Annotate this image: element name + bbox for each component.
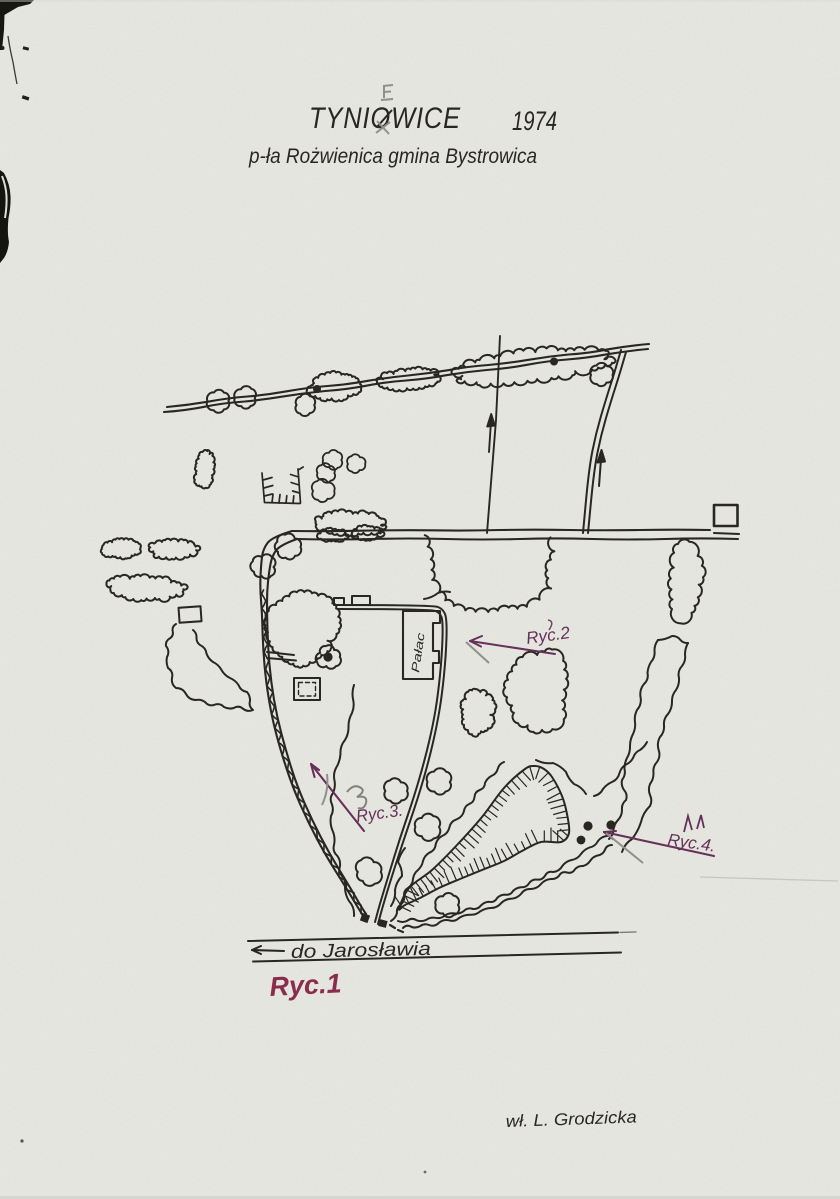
svg-text:p-ła Rożwienica gmina Bystrowi: p-ła Rożwienica gmina Bystrowica [248,145,537,168]
svg-text:Ryc.1: Ryc.1 [269,968,342,1002]
svg-text:1974: 1974 [512,106,557,136]
svg-text:do Jarosławia: do Jarosławia [291,939,431,963]
